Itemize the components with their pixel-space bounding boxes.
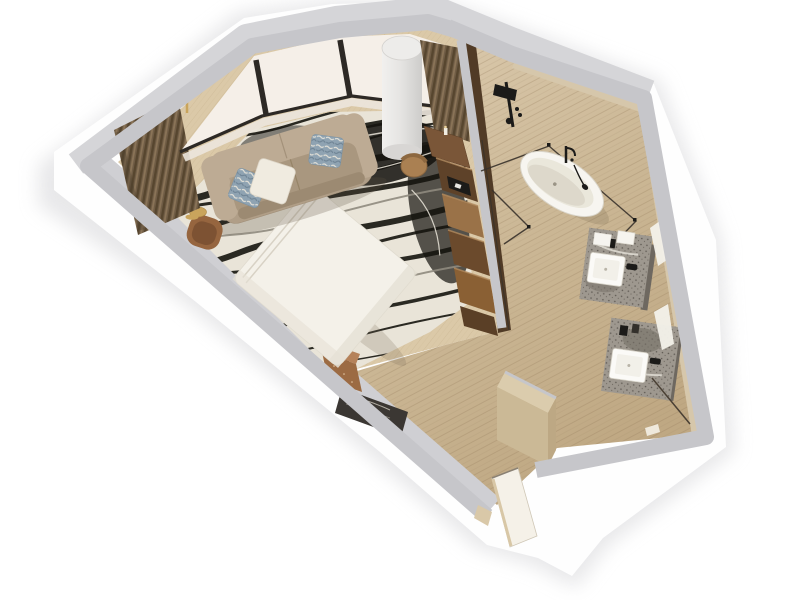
column	[382, 36, 422, 160]
towel-stack	[617, 231, 636, 245]
amenity	[631, 324, 639, 334]
amenity	[619, 325, 628, 336]
towel-stack	[593, 232, 612, 246]
floorplan-svg	[0, 0, 800, 600]
floorplan-3d-render	[0, 0, 800, 600]
vanity-1	[579, 227, 658, 311]
